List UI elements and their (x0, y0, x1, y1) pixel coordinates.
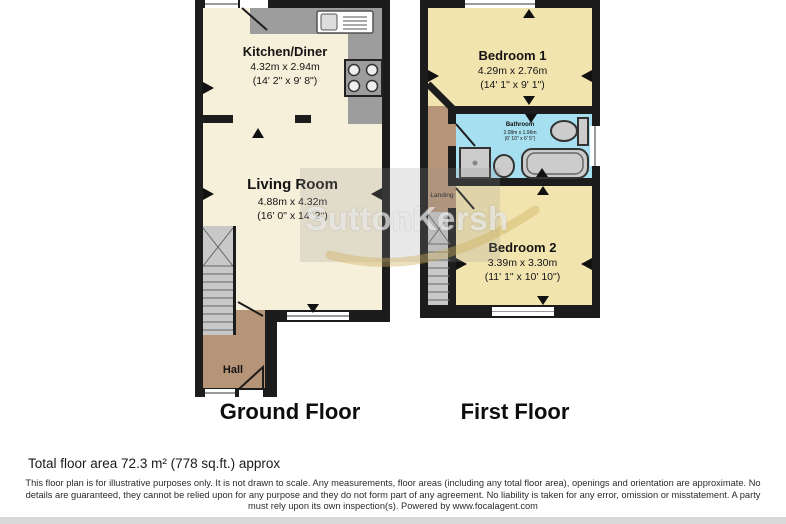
bedroom1-dims-imperial: (14' 1" x 9' 1") (440, 79, 585, 92)
bedroom1-dims-metric: 4.29m x 2.76m (440, 65, 585, 78)
room-label-bedroom1: Bedroom 1 4.29m x 2.76m (14' 1" x 9' 1") (440, 48, 585, 93)
disclaimer-line-1: This floor plan is for illustrative purp… (8, 478, 778, 490)
floor-title-first: First Floor (415, 399, 615, 425)
disclaimer-line-2: details are guaranteed, they cannot be r… (8, 490, 778, 502)
kitchen-dims-imperial: (14' 2" x 9' 8") (205, 75, 365, 88)
kitchen-dims-metric: 4.32m x 2.94m (205, 61, 365, 74)
disclaimer-line-3: must rely upon its own inspection(s). Po… (8, 501, 778, 513)
stairs-icon (203, 226, 236, 335)
room-label-bathroom: Bathroom 2.08m x 1.96m (6' 10" x 6' 5") (480, 122, 560, 142)
bottom-edge-bar (0, 517, 786, 524)
total-area-text: Total floor area 72.3 m² (778 sq.ft.) ap… (28, 456, 280, 471)
kitchen-divider-walls (203, 115, 311, 123)
kitchen-name: Kitchen/Diner (205, 44, 365, 60)
floorplan-canvas: Kitchen/Diner 4.32m x 2.94m (14' 2" x 9'… (0, 0, 786, 524)
room-label-kitchen: Kitchen/Diner 4.32m x 2.94m (14' 2" x 9'… (205, 44, 365, 89)
floor-title-ground: Ground Floor (185, 399, 395, 425)
room-label-hall: Hall (209, 364, 257, 378)
bathroom-dims-imperial: (6' 10" x 6' 5") (480, 136, 560, 142)
bathroom-window (590, 126, 600, 166)
sink-icon (317, 11, 373, 33)
bedroom1-name: Bedroom 1 (440, 48, 585, 64)
window-glass-line (594, 126, 596, 166)
bathroom-name: Bathroom (480, 122, 560, 130)
watermark-text: SuttonKersh (272, 200, 542, 238)
disclaimer-text: This floor plan is for illustrative purp… (8, 478, 778, 513)
